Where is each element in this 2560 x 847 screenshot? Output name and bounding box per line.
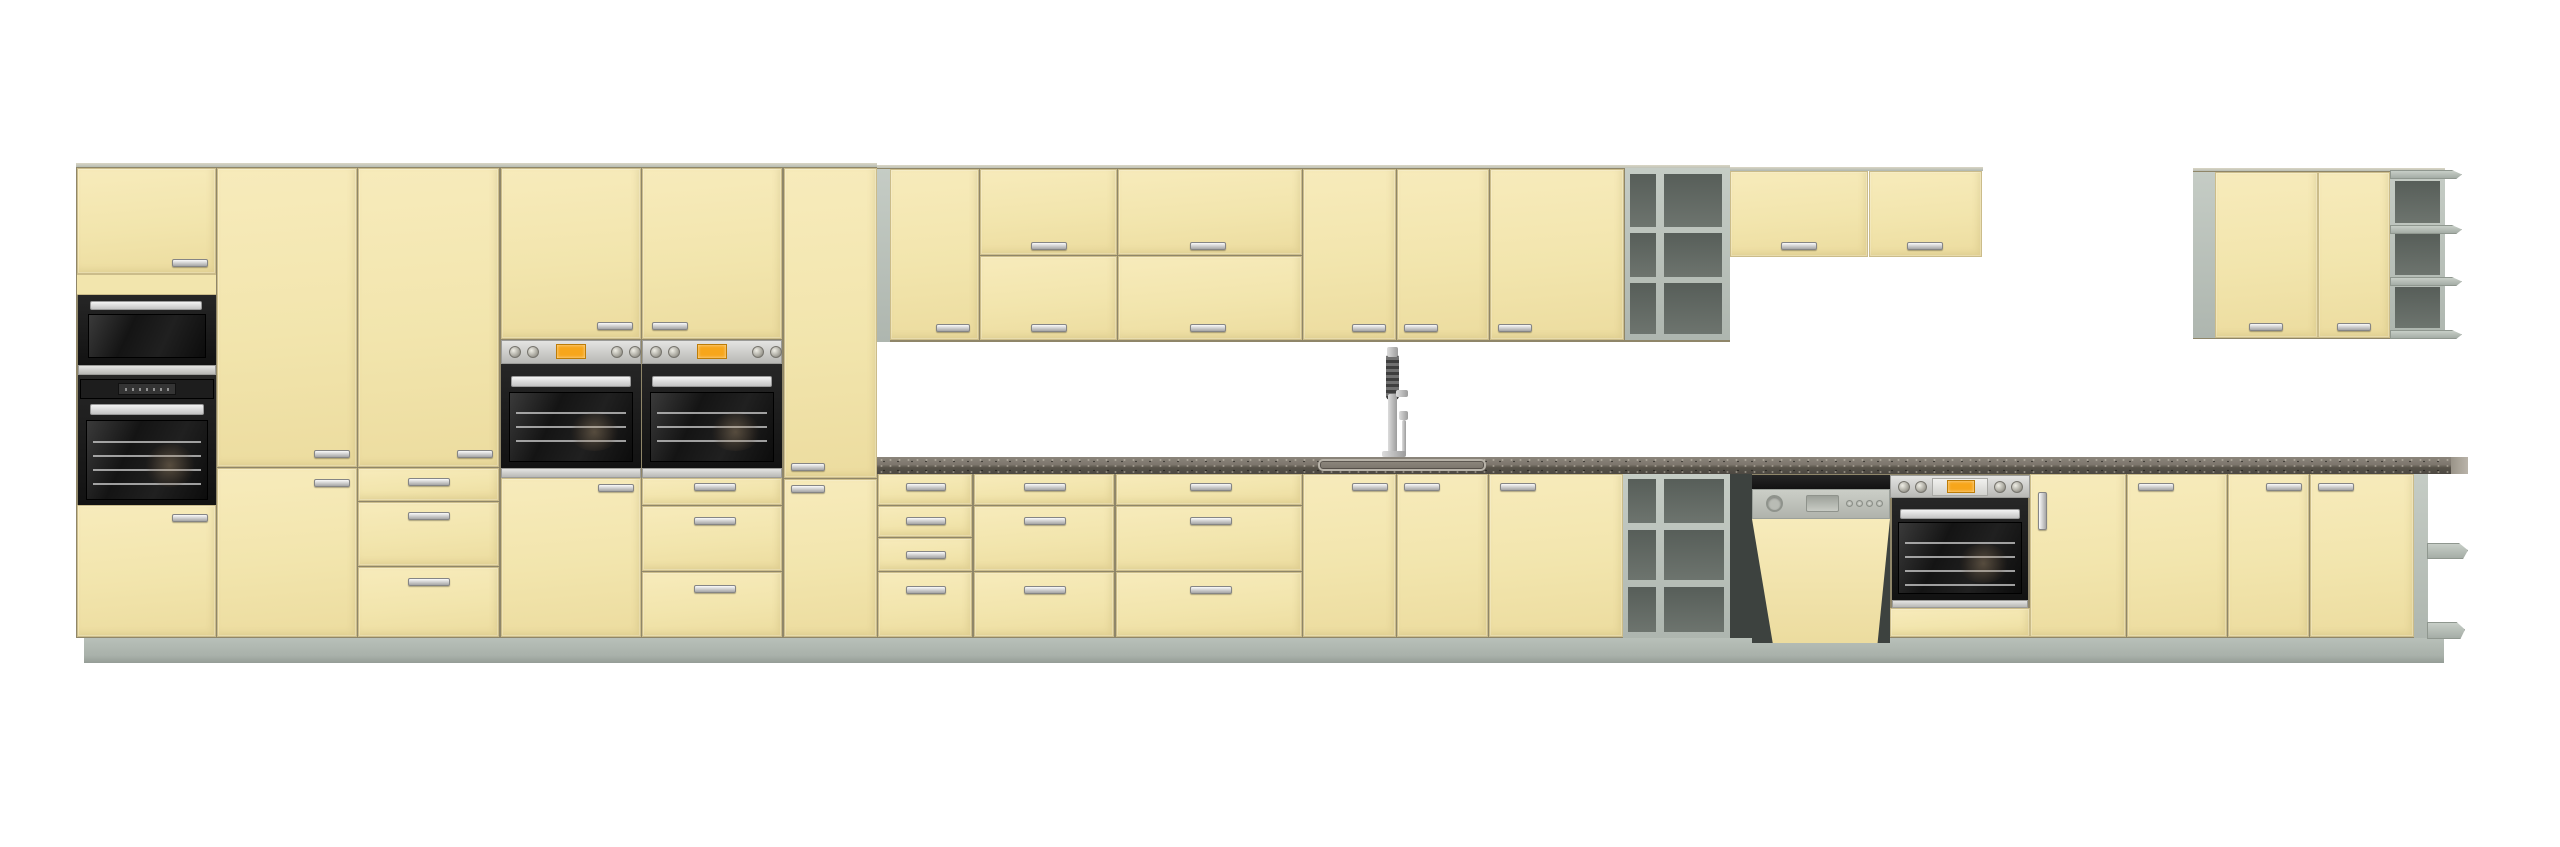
oven-tower-upper-handle [172,259,208,267]
wall-cabinet-2-top-handle [1031,242,1067,250]
base-drawer-unit-2-handle [1024,586,1066,594]
built-in-oven-knob [2011,481,2023,493]
sink-base-right-door [1397,474,1488,637]
oven-column-1-upper-handle [597,322,633,330]
base-shelf-compartment [1664,479,1724,523]
oven-1-knob [611,346,623,358]
oven-column-2-upper-door [642,168,782,339]
tall-cabinet-b-drawer-3-handle [408,578,450,586]
right-wall-door-2 [2318,172,2390,338]
oven-1-window [509,392,633,462]
base-corner-shelf-panel [2414,473,2428,638]
base-drawer-unit-3-handle [1190,586,1232,594]
base-drawer-unit-2-handle [1024,483,1066,491]
dishwasher-knob [1766,495,1783,512]
base-shelf-compartment [1628,587,1656,632]
base-drawer-unit-1-drawer-4 [878,572,972,637]
dishwasher-button [1856,500,1863,507]
base-corner-shelf-mid [2427,543,2468,559]
wall-shelf-compartment [1664,283,1722,334]
tall-cabinet-b-drawer-1-handle [408,478,450,486]
countertop [877,457,2468,474]
base-drawer-unit-1-handle [906,517,946,525]
oven-column-1-lower-handle [598,484,634,492]
right-wall-shelf-tab [2390,170,2462,179]
oven-tower-mid-strip [77,274,216,295]
base-drawer-unit-1-handle [906,586,946,594]
right-wall-shelf-compartment [2395,181,2440,223]
tall-cabinet-b-upper-handle [457,450,493,458]
faucet-spray-knob [1399,411,1408,420]
wall-cabinet-7-handle [1907,242,1943,250]
kickboard-plinth [84,638,2444,663]
base-drawer-unit-3-handle [1190,483,1232,491]
built-in-oven-knob [1898,481,1910,493]
base-shelf-compartment [1628,479,1656,523]
oven-column-2-upper-handle [652,322,688,330]
wall-cabinet-1-door [890,169,979,340]
oven-2-knob [770,346,782,358]
tall-cabinet-c-upper-door [784,168,877,478]
base-drawer-unit-2-drawer-3 [974,572,1114,637]
wall-cabinet-3-top-handle [1190,242,1226,250]
right-wall-shelf-tab [2390,277,2462,286]
base-drawer-unit-2-handle [1024,517,1066,525]
sink [1318,459,1486,471]
oven-1-knob [629,346,641,358]
built-in-oven-knob [1915,481,1927,493]
base-drawer-unit-3-drawer-3 [1116,572,1302,637]
countertop-end-cap [2451,457,2468,474]
dishwasher-slot [1752,475,1890,489]
right-wall-end-panel [2193,172,2215,338]
appliance-divider-strip [78,365,216,375]
wall-shelf-compartment [1630,283,1656,334]
built-in-oven-bottom-strip [1892,600,2028,608]
base-door-4-handle [2318,483,2354,491]
right-wall-shelf-tab [2390,225,2462,234]
oven-2-bottom-strip [642,468,782,478]
tower-oven-handle [90,404,204,415]
wall-cabinet-4-left-handle [1352,324,1386,332]
tower-oven-window [86,420,208,500]
built-in-oven-handle [1900,509,2020,519]
wall-run-end-panel [877,169,890,342]
dishwasher-door-panel [1752,519,1890,643]
oven-column-2-drawer-2 [642,506,782,571]
tall-cabinet-c-upper-handle [791,463,825,471]
base-corner-shelf-bottom [2427,622,2465,639]
wall-cabinet-4-right-handle [1404,324,1438,332]
oven-2-knob [668,346,680,358]
tall-cabinet-c-lower-handle [791,485,825,493]
base-door-2-handle [2138,483,2174,491]
faucet-lever [1396,390,1408,397]
built-in-oven-knob [1994,481,2006,493]
oven-tower-lower-handle [172,514,208,522]
wall-shelf-compartment [1664,233,1722,277]
right-wall-door-1-handle [2249,323,2283,331]
base-door-3 [2228,474,2309,637]
base-drawer-unit-1-handle [906,551,946,559]
oven-column-2-drawer-1-handle [694,483,736,491]
wall-shelf-compartment [1630,233,1656,277]
wall-cabinet-1-handle [936,324,970,332]
kitchen-cabinet-set-render [0,0,2560,847]
base-shelf-compartment [1628,530,1656,580]
oven-1-knob [509,346,521,358]
base-drawer-unit-3-drawer-2 [1116,506,1302,571]
oven-1-bottom-strip [501,468,641,478]
oven-column-2-drawer-3-handle [694,585,736,593]
right-wall-shelf-tab [2390,330,2462,339]
right-wall-door-2-handle [2337,323,2371,331]
tall-cabinet-a-upper-handle [314,450,350,458]
dishwasher-button [1866,500,1873,507]
wall-cabinet-6-handle [1781,242,1817,250]
wall-cabinet-5-handle [1498,324,1532,332]
base-cabinet-handle [1500,483,1536,491]
base-shelf-compartment [1664,587,1724,632]
oven-column-1-lower-door [501,478,641,637]
built-in-oven-drawer [1890,608,2030,637]
oven-column-1-upper-door [501,168,641,339]
sink-base-left-door [1303,474,1396,637]
oven-tower-lower-door [77,505,216,637]
tall-cabinet-a-upper-door [217,168,357,467]
wall-shelf-compartment [1664,174,1722,227]
built-in-oven-display [1947,480,1975,493]
oven-2-knob [752,346,764,358]
base-door-3-handle [2266,483,2302,491]
microwave-handle [90,301,202,310]
tall-cabinet-c-lower-door [784,479,877,637]
faucet-base [1382,451,1406,457]
right-wall-shelf-compartment [2395,287,2440,328]
base-door-2 [2127,474,2227,637]
wall-cabinet-2-bottom-handle [1031,324,1067,332]
oven-column-2-drawer-3 [642,572,782,637]
right-wall-door-1 [2215,172,2318,338]
oven-2-window [650,392,774,462]
tall-cabinet-a-lower-handle [314,479,350,487]
oven-1-display [556,344,586,359]
tall-cabinet-b-drawer-2-handle [408,512,450,520]
faucet-top-cap [1387,347,1398,357]
built-in-oven-window [1898,522,2022,594]
oven-2-knob [650,346,662,358]
base-shelf-compartment [1664,530,1724,580]
tall-cabinet-b-upper-door [358,168,499,467]
base-drawer-unit-3-handle [1190,517,1232,525]
microwave-window [88,314,206,358]
oven-2-display [697,344,727,359]
base-drawer-unit-2-drawer-2 [974,506,1114,571]
base-cabinet-door [1489,474,1623,637]
oven-1-handle [511,376,631,387]
oven-2-handle [652,376,772,387]
base-door-4 [2310,474,2414,637]
wall-cabinet-3-bottom-handle [1190,324,1226,332]
dishwasher-button [1846,500,1853,507]
dishwasher-handle-recess [1806,495,1839,512]
wall-shelf-compartment [1630,174,1656,227]
sink-base-right-handle [1404,483,1440,491]
wall-cabinet-5-door [1490,169,1624,340]
wall-cabinet-4-left-door [1303,169,1396,340]
oven-column-2-drawer-2-handle [694,517,736,525]
faucet-body [1388,394,1397,452]
base-drawer-unit-1-handle [906,483,946,491]
oven-1-knob [527,346,539,358]
tower-oven-display [118,383,176,395]
wall-cabinet-4-right-door [1397,169,1489,340]
dishwasher-gap [1730,473,1752,638]
sink-base-left-handle [1352,483,1388,491]
right-wall-shelf-compartment [2395,234,2440,275]
tall-cabinet-a-lower-door [217,468,357,637]
base-door-vertical-handle [2038,492,2047,530]
dishwasher-button [1876,500,1883,507]
